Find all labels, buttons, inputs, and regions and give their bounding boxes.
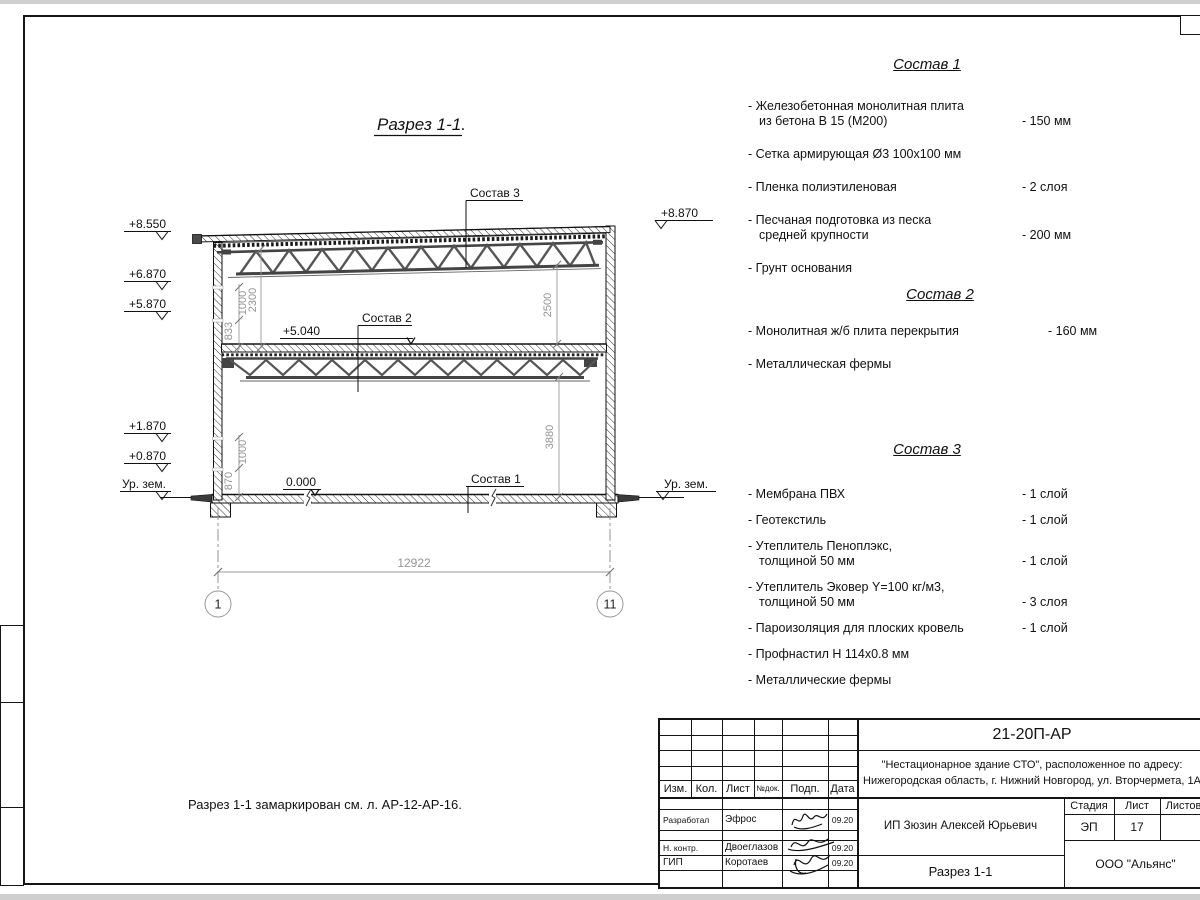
item-value: - 1 слой bbox=[1022, 554, 1106, 569]
elevation-text: +8.870 bbox=[661, 206, 698, 220]
level-mid: +5.040 bbox=[280, 324, 415, 344]
composition-item: - Пленка полиэтиленовая - 2 слоя bbox=[748, 180, 1106, 195]
dim-span: 12922 bbox=[397, 556, 431, 570]
left-margin-box-2 bbox=[0, 702, 24, 809]
floor-assembly bbox=[222, 344, 607, 381]
item-name: - Пароизоляция для плоских кровель bbox=[748, 621, 1022, 636]
composition-item: - Пароизоляция для плоских кровель - 1 с… bbox=[748, 621, 1106, 636]
section-title: Разрез 1-1. bbox=[374, 115, 466, 136]
item-value: - 1 слой bbox=[1022, 487, 1106, 502]
section-drawing: Разрез 1-1. bbox=[0, 0, 760, 680]
roof-assembly bbox=[193, 227, 611, 278]
dim-1000-upper: 1000 bbox=[237, 291, 249, 315]
elevation-text: +1.870 bbox=[129, 419, 166, 433]
client-name: ИП Зюзин Алексей Юрьевич bbox=[857, 797, 1064, 855]
apron-right bbox=[618, 495, 639, 503]
composition-item: - Мембрана ПВХ - 1 слой bbox=[748, 487, 1106, 502]
elevation-mark: +5.870 bbox=[124, 297, 171, 320]
level-mid-text: +5.040 bbox=[283, 324, 320, 338]
axis-number-right: 11 bbox=[604, 598, 617, 612]
elevation-text: +8.550 bbox=[129, 217, 166, 231]
item-name: - Пленка полиэтиленовая bbox=[748, 180, 1022, 195]
row-name-gip: Коротаев bbox=[722, 855, 785, 870]
composition-3: Состав 3 - Мембрана ПВХ - 1 слой - Геоте… bbox=[748, 441, 1106, 699]
drawing-note: Разрез 1-1 замаркирован см. л. АР-12-АР-… bbox=[188, 797, 528, 812]
composition-item: - Железобетонная монолитная плита из бет… bbox=[748, 99, 1106, 129]
composition-item: - Металлические фермы bbox=[748, 673, 1106, 688]
sheet-label: Лист bbox=[1114, 797, 1160, 814]
organization-name: ООО "Альянс" bbox=[1064, 840, 1200, 887]
col-header-ndok: №док. bbox=[754, 780, 782, 797]
row-role-gip: ГИП bbox=[660, 855, 725, 870]
item-value: - 1 слой bbox=[1022, 621, 1106, 636]
footing-left bbox=[211, 503, 231, 517]
col-header-podp: Подп. bbox=[782, 780, 828, 797]
composition-2-title: Состав 2 bbox=[748, 286, 1132, 303]
drawing-sheet: Разрез 1-1. bbox=[0, 0, 1200, 900]
left-margin-box-3 bbox=[0, 807, 24, 886]
project-description: "Нестационарное здание СТО", расположенн… bbox=[857, 750, 1200, 797]
composition-item: - Песчаная подготовка из песка средней к… bbox=[748, 213, 1106, 243]
item-name: - Профнастил Н 114х0.8 мм bbox=[748, 647, 1022, 662]
section-title-text: Разрез 1-1. bbox=[377, 115, 466, 134]
item-value: - 160 мм bbox=[1048, 324, 1132, 339]
col-header-izm: Изм. bbox=[660, 780, 691, 797]
callout-sostav3: Состав 3 bbox=[470, 186, 520, 200]
composition-item: - Сетка армирующая Ø3 100х100 мм bbox=[748, 147, 1106, 162]
item-value: - 3 слоя bbox=[1022, 595, 1106, 610]
axis-number-left: 1 bbox=[215, 598, 222, 612]
stage-value: ЭП bbox=[1064, 814, 1114, 840]
row-name-ncontrol: Двоеглазов bbox=[722, 840, 785, 855]
item-name: - Монолитная ж/б плита перекрытия bbox=[748, 324, 1048, 339]
right-wall bbox=[606, 226, 615, 500]
floor-slab bbox=[222, 344, 607, 352]
composition-item: - Геотекстиль - 1 слой bbox=[748, 513, 1106, 528]
sheet-number: 17 bbox=[1114, 814, 1160, 840]
composition-item: - Профнастил Н 114х0.8 мм bbox=[748, 647, 1106, 662]
dim-3880: 3880 bbox=[544, 425, 556, 449]
item-name: - Мембрана ПВХ bbox=[748, 487, 1022, 502]
signature-developer bbox=[786, 807, 830, 833]
composition-item: - Грунт основания bbox=[748, 261, 1106, 276]
elevation-text: +0.870 bbox=[129, 449, 166, 463]
item-name: - Песчаная подготовка из песка средней к… bbox=[748, 213, 1022, 243]
col-header-kol: Кол. bbox=[691, 780, 722, 797]
roof-edge-cap bbox=[193, 235, 202, 244]
col-header-data: Дата bbox=[828, 780, 857, 797]
item-value: - 2 слоя bbox=[1022, 180, 1106, 195]
item-name: - Железобетонная монолитная плита из бет… bbox=[748, 99, 1022, 129]
footing-right bbox=[597, 503, 617, 517]
item-value: - 1 слой bbox=[1022, 513, 1106, 528]
composition-2: Состав 2 - Монолитная ж/б плита перекрыт… bbox=[748, 286, 1132, 390]
row-role-developer: Разработал bbox=[660, 809, 725, 830]
row-name-developer: Эфрос bbox=[722, 809, 785, 830]
item-name: - Металлические фермы bbox=[748, 673, 1022, 688]
span-dimension: 12922 1 11 bbox=[205, 508, 623, 617]
item-name: - Утеплитель Пеноплэкс, толщиной 50 мм bbox=[748, 539, 1022, 569]
paper-edge-bottom bbox=[0, 894, 1200, 900]
elevation-text: Ур. зем. bbox=[122, 477, 166, 491]
composition-3-title: Состав 3 bbox=[748, 441, 1106, 458]
item-name: - Грунт основания bbox=[748, 261, 1022, 276]
elevation-mark: +0.870 bbox=[124, 449, 171, 472]
item-name: - Сетка армирующая Ø3 100х100 мм bbox=[748, 147, 1022, 162]
item-value: - 150 мм bbox=[1022, 114, 1106, 129]
elevation-text: Ур. зем. bbox=[664, 477, 708, 491]
elevation-mark-ground-right: Ур. зем. bbox=[656, 477, 716, 500]
item-value: - 200 мм bbox=[1022, 228, 1106, 243]
col-header-list: Лист bbox=[722, 780, 754, 797]
title-block: Изм. Кол. Лист №док. Подп. Дата Разработ… bbox=[658, 718, 1200, 889]
left-wall bbox=[213, 242, 224, 500]
composition-item: - Металлическая фермы bbox=[748, 357, 1132, 372]
composition-1: Состав 1 - Железобетонная монолитная пли… bbox=[748, 56, 1106, 294]
sheet-title: Разрез 1-1 bbox=[857, 855, 1064, 887]
apron-left bbox=[191, 495, 212, 503]
row-role-ncontrol: Н. контр. bbox=[660, 840, 725, 855]
elevation-mark-ground-left: Ур. зем. bbox=[120, 477, 171, 500]
level-zero-text: 0.000 bbox=[286, 475, 316, 489]
sheets-label: Листов bbox=[1160, 797, 1200, 814]
signature-gip bbox=[784, 833, 838, 877]
dim-833: 833 bbox=[223, 322, 235, 340]
elevation-text: +6.870 bbox=[129, 267, 166, 281]
copy-number-box bbox=[1180, 15, 1200, 35]
item-name: - Утеплитель Эковер Y=100 кг/м3, толщино… bbox=[748, 580, 1022, 610]
dim-870: 870 bbox=[223, 472, 235, 490]
roof-truss bbox=[217, 240, 603, 278]
dim-1000-lower: 1000 bbox=[237, 440, 249, 464]
elevation-mark: +1.870 bbox=[124, 419, 171, 442]
elevation-mark: +8.550 bbox=[124, 217, 171, 240]
row-date-developer: 09.20 bbox=[828, 809, 857, 830]
callout-sostav1: Состав 1 bbox=[471, 472, 521, 486]
item-name: - Геотекстиль bbox=[748, 513, 1022, 528]
composition-1-title: Состав 1 bbox=[748, 56, 1106, 73]
level-zero: 0.000 bbox=[283, 475, 321, 496]
item-name: - Металлическая фермы bbox=[748, 357, 1048, 372]
elevation-text: +5.870 bbox=[129, 297, 166, 311]
document-code: 21-20П-АР bbox=[857, 720, 1200, 750]
elevation-marks-left: +8.550 +6.870 +5.870 +1.870 +0.870 bbox=[120, 217, 171, 500]
floor-truss bbox=[222, 358, 598, 381]
composition-item: - Монолитная ж/б плита перекрытия - 160 … bbox=[748, 324, 1132, 339]
elevation-mark: +6.870 bbox=[124, 267, 171, 290]
stage-label: Стадия bbox=[1064, 797, 1114, 814]
composition-item: - Утеплитель Эковер Y=100 кг/м3, толщино… bbox=[748, 580, 1106, 610]
elevation-mark-roof-right: +8.870 bbox=[655, 206, 713, 229]
callout-sostav2: Состав 2 bbox=[362, 311, 412, 325]
dim-2500: 2500 bbox=[542, 293, 554, 317]
composition-item: - Утеплитель Пеноплэкс, толщиной 50 мм -… bbox=[748, 539, 1106, 569]
elevation-marks-right: +8.870 Ур. зем. bbox=[655, 206, 716, 500]
